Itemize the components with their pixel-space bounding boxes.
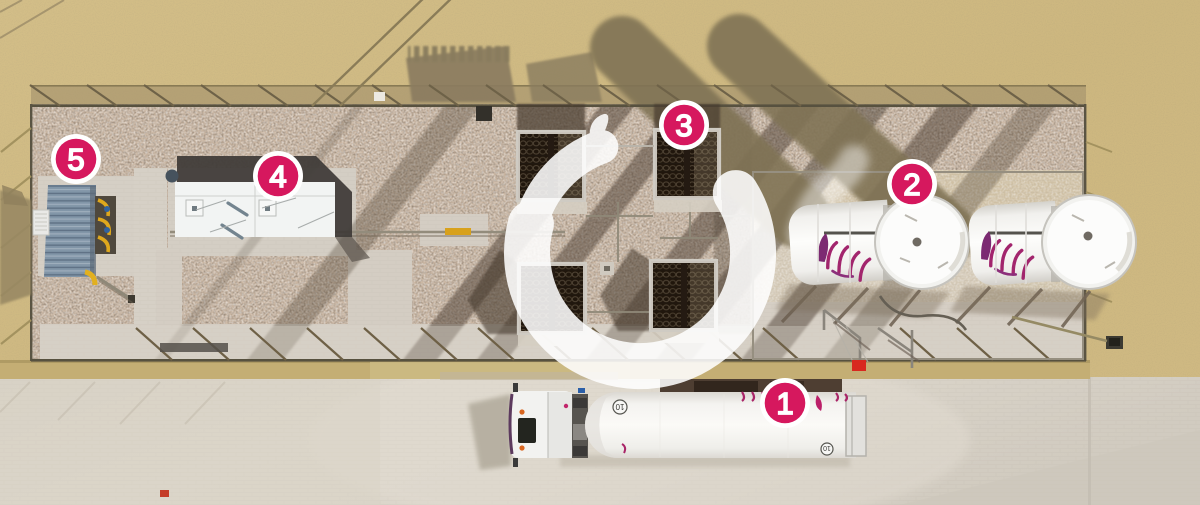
svg-text:2: 2 bbox=[903, 167, 920, 202]
svg-text:5: 5 bbox=[67, 142, 84, 177]
svg-text:4: 4 bbox=[269, 159, 286, 194]
svg-text:10: 10 bbox=[615, 402, 624, 411]
svg-text:3: 3 bbox=[675, 108, 692, 143]
svg-text:10: 10 bbox=[823, 444, 831, 451]
svg-text:1: 1 bbox=[776, 386, 793, 421]
